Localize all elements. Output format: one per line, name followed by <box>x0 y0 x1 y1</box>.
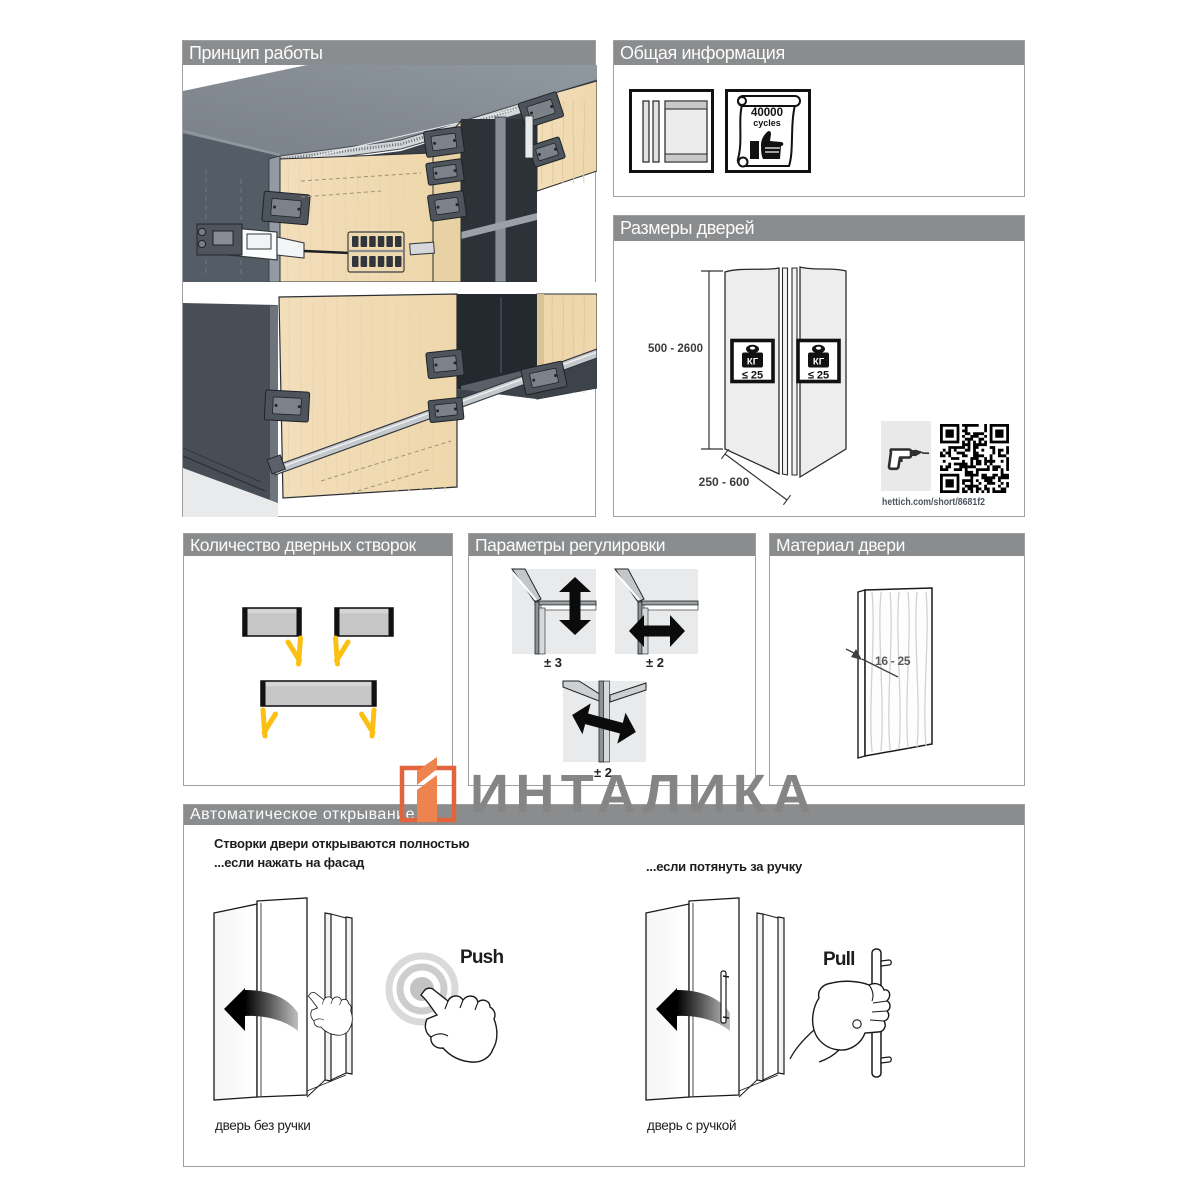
svg-text:≤ 25: ≤ 25 <box>742 370 763 382</box>
svg-text:КГ: КГ <box>813 357 825 368</box>
svg-text:± 2: ± 2 <box>646 655 664 670</box>
svg-text:250 - 600: 250 - 600 <box>699 475 750 489</box>
svg-text:hettich.com/short/8681f2: hettich.com/short/8681f2 <box>882 497 985 508</box>
svg-text:500 - 2600: 500 - 2600 <box>648 343 703 355</box>
svg-text:16 - 25: 16 - 25 <box>875 654 911 668</box>
svg-text:± 3: ± 3 <box>544 655 562 670</box>
svg-text:≤ 25: ≤ 25 <box>808 370 829 382</box>
svg-text:cycles: cycles <box>753 118 781 128</box>
svg-text:КГ: КГ <box>747 357 759 368</box>
